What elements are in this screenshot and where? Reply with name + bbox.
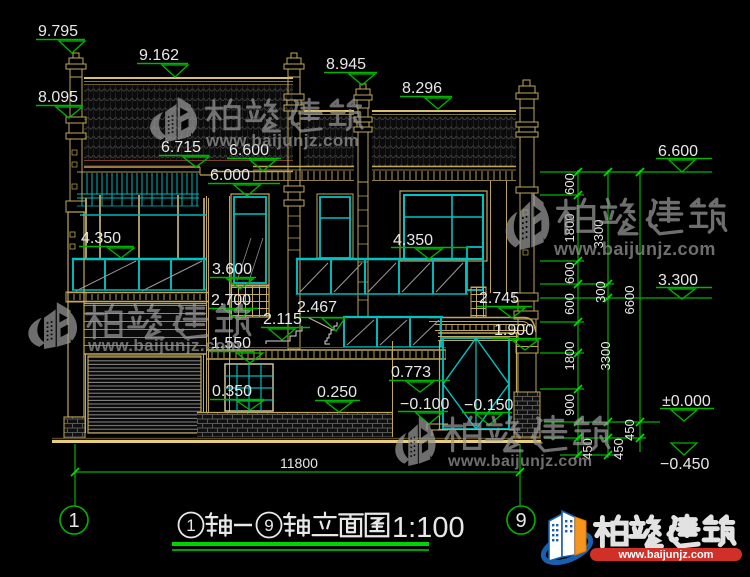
svg-text:1: 1	[68, 510, 79, 532]
svg-text:2.745: 2.745	[479, 290, 519, 307]
svg-text:900: 900	[562, 394, 577, 416]
svg-text:11800: 11800	[280, 455, 318, 471]
svg-text:−0.100: −0.100	[400, 396, 449, 413]
svg-text:600: 600	[562, 173, 577, 195]
svg-text:2.115: 2.115	[263, 311, 302, 328]
svg-text:0.250: 0.250	[317, 384, 357, 401]
svg-text:9: 9	[515, 510, 526, 532]
svg-text:600: 600	[562, 262, 577, 284]
svg-text:2.700: 2.700	[211, 292, 251, 309]
svg-text:6.600: 6.600	[658, 143, 698, 160]
svg-text:www.baijunjz.com: www.baijunjz.com	[205, 131, 359, 150]
svg-text:1:100: 1:100	[392, 512, 465, 544]
svg-text:6600: 6600	[622, 286, 637, 315]
svg-text:9: 9	[264, 516, 273, 535]
svg-text:8.095: 8.095	[38, 89, 78, 106]
svg-text:4.350: 4.350	[393, 232, 433, 249]
svg-text:1.900: 1.900	[494, 322, 534, 339]
svg-text:1800: 1800	[562, 342, 577, 371]
svg-text:9.795: 9.795	[38, 23, 78, 40]
svg-text:9.162: 9.162	[139, 47, 179, 64]
svg-text:600: 600	[562, 293, 577, 315]
svg-text:www.baijunjz.com: www.baijunjz.com	[618, 549, 714, 561]
svg-text:300: 300	[593, 281, 608, 303]
svg-text:450: 450	[622, 419, 637, 441]
svg-text:±0.000: ±0.000	[662, 393, 711, 410]
svg-text:8.945: 8.945	[326, 56, 366, 73]
svg-text:1: 1	[186, 516, 195, 535]
svg-text:4.350: 4.350	[81, 230, 121, 247]
svg-text:−0.150: −0.150	[464, 397, 513, 414]
svg-text:3300: 3300	[598, 342, 613, 371]
svg-text:2.467: 2.467	[297, 299, 337, 316]
svg-text:3.300: 3.300	[658, 272, 698, 289]
svg-text:www.baijunjz.com: www.baijunjz.com	[87, 336, 241, 355]
svg-text:www.baijunjz.com: www.baijunjz.com	[553, 239, 716, 259]
svg-text:8.296: 8.296	[402, 80, 442, 97]
svg-text:0.350: 0.350	[212, 383, 252, 400]
svg-text:0.773: 0.773	[391, 364, 431, 381]
svg-text:−0.450: −0.450	[660, 456, 709, 473]
svg-text:3.600: 3.600	[212, 261, 252, 278]
svg-text:6.000: 6.000	[210, 167, 250, 184]
svg-text:www.baijunjz.com: www.baijunjz.com	[447, 453, 593, 470]
